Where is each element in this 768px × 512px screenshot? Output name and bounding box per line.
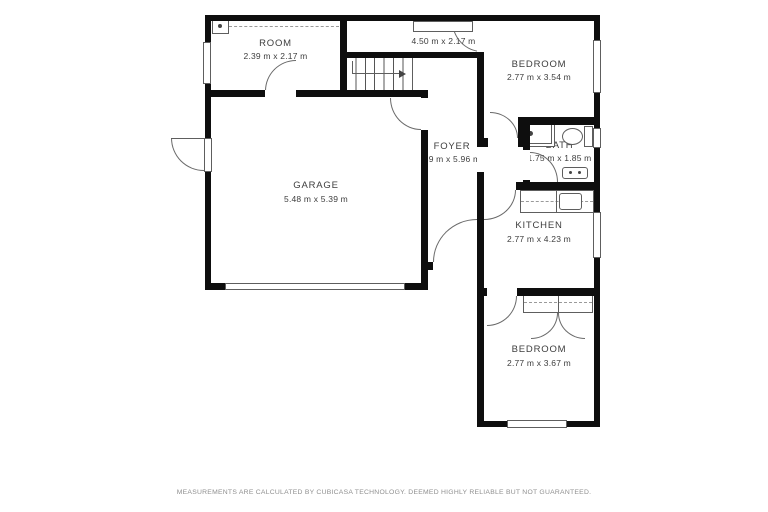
- stair-arrow-shaft: [352, 73, 402, 74]
- window-bath-right: [593, 128, 601, 148]
- wardrobe-rod-dot: [218, 24, 222, 28]
- side-door-leaf: [204, 138, 212, 172]
- window-room-left: [203, 42, 211, 84]
- kitchen-sink-icon: [559, 193, 582, 210]
- garage-label: GARAGE: [211, 180, 421, 191]
- garage-overhead-door: [225, 283, 405, 290]
- opening-bedroom2-door: [487, 288, 517, 296]
- window-bedroom1-right: [593, 40, 601, 93]
- opening-bedroom1-door: [488, 138, 518, 147]
- kitchen-label: KITCHEN: [484, 220, 594, 231]
- wall-exterior-top: [205, 15, 600, 21]
- opening-entry-door: [433, 262, 477, 270]
- stair-arrow-icon: [399, 70, 406, 78]
- room-dimensions: 2.39 m x 2.17 m: [211, 51, 340, 61]
- toilet-icon: [562, 128, 583, 145]
- bath-sink-icon: [562, 167, 588, 179]
- closet-door-right-arc: [558, 313, 585, 339]
- entry-door-arc: [433, 219, 477, 262]
- bedroom2-label: BEDROOM: [484, 344, 594, 355]
- bedroom2-dimensions: 2.77 m x 3.67 m: [484, 358, 594, 368]
- side-door-arc: [171, 138, 204, 171]
- room-door-arc: [265, 60, 296, 91]
- wall-stairs-top: [345, 52, 477, 58]
- opening-wic-door: [477, 21, 484, 52]
- window-kitchen-right: [593, 212, 601, 258]
- wall-garage-top: [205, 90, 428, 97]
- toilet-tank: [584, 126, 593, 147]
- bath-sink-dot-2: [578, 171, 581, 174]
- garage-door-arc: [390, 98, 421, 130]
- wall-center-vertical: [477, 15, 484, 268]
- disclaimer-text: MEASUREMENTS ARE CALCULATED BY CUBICASA …: [0, 489, 768, 496]
- garage-dimensions: 5.48 m x 5.39 m: [211, 194, 421, 204]
- bedroom1-label: BEDROOM: [484, 59, 594, 70]
- kitchen-door-arc: [484, 190, 516, 220]
- opening-bath-door: [523, 150, 530, 180]
- opening-room-door: [265, 90, 296, 97]
- foyer-label: FOYER: [420, 141, 484, 152]
- wall-kitchen-top: [516, 182, 594, 190]
- stairs-edge: [412, 58, 413, 90]
- side-door-leaf-line: [171, 138, 204, 139]
- foyer-dimensions: 89 m x 5.96 m: [420, 154, 484, 164]
- kitchen-dimensions: 2.77 m x 4.23 m: [484, 234, 594, 244]
- wall-bath-top: [523, 117, 594, 125]
- bedroom1-door-arc: [490, 112, 518, 138]
- kitchen-counter-divider: [556, 190, 557, 213]
- bedroom2-door-arc: [487, 296, 517, 326]
- kitchen-counter-dashline: [521, 201, 593, 202]
- bedroom1-dimensions: 2.77 m x 3.54 m: [484, 72, 594, 82]
- opening-hallway: [477, 147, 484, 172]
- room-closet-dashline: [229, 26, 339, 27]
- opening-garage-door: [421, 98, 428, 130]
- window-bedroom2-bottom: [507, 420, 567, 428]
- bath-sink-dot-1: [569, 171, 572, 174]
- room-label: ROOM: [211, 38, 340, 49]
- wic-shelf: [413, 21, 473, 32]
- wall-right-wing-left: [477, 262, 484, 427]
- floor-plan: ROOM 2.39 m x 2.17 m W.I.C. 4.50 m x 2.1…: [0, 0, 768, 512]
- closet-door-left-arc: [531, 313, 558, 339]
